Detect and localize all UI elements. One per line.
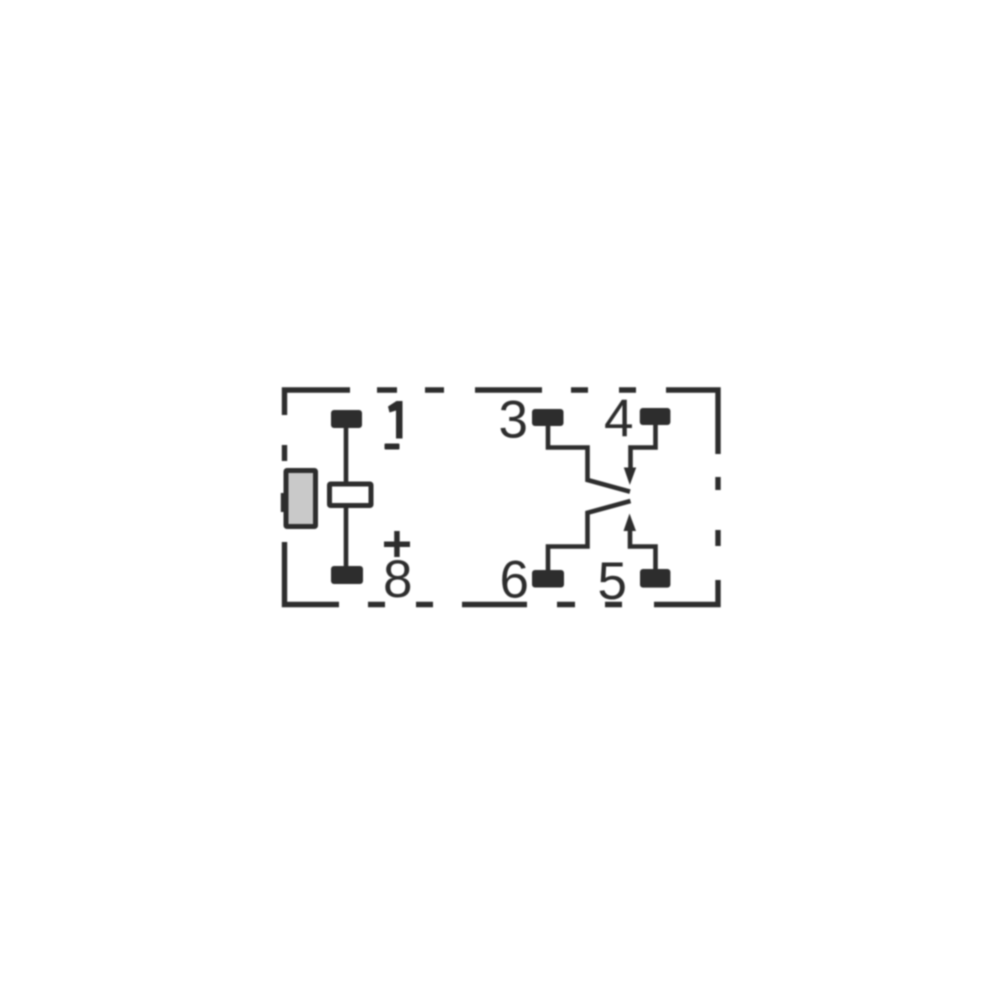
svg-text:4: 4 [604, 390, 633, 449]
svg-text:5: 5 [598, 552, 627, 611]
svg-text:6: 6 [500, 551, 529, 610]
svg-text:8: 8 [383, 550, 412, 609]
svg-text:3: 3 [499, 391, 528, 450]
